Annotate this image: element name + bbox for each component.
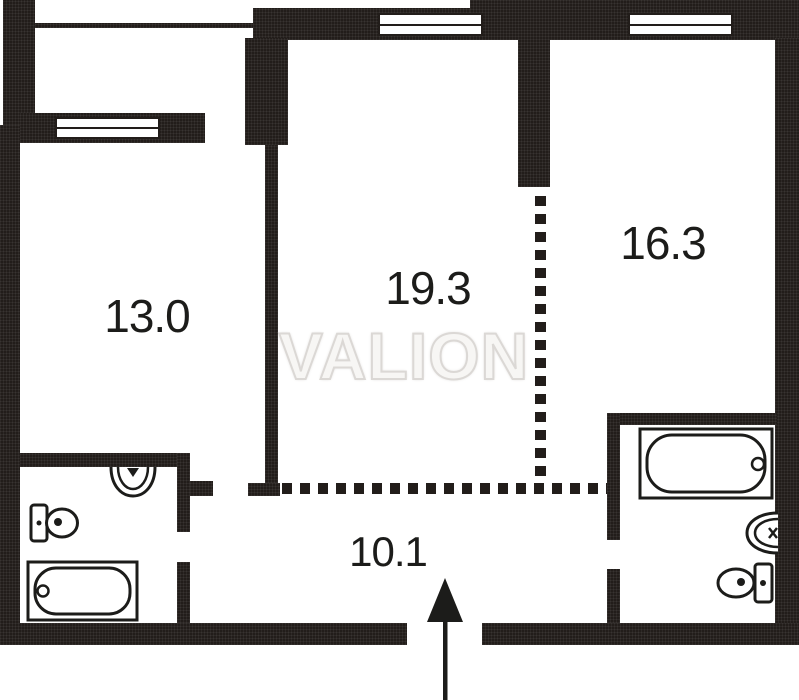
room-center-area-label: 19.3 (385, 261, 471, 315)
divider-13-19-foot (248, 483, 280, 496)
bathroom-right-side-wall-upper (607, 413, 620, 540)
exterior-bottom-wall-left (0, 623, 407, 645)
balcony-top-wall (35, 23, 255, 28)
bathtub-right-icon (638, 427, 774, 500)
window-room-center (378, 13, 483, 36)
window-room-left (55, 117, 160, 139)
hallway-area-label: 10.1 (349, 528, 427, 576)
room-left-area-label: 13.0 (104, 289, 190, 343)
floor-plan: 13.0 19.3 16.3 10.1 VALION (0, 0, 799, 700)
dashed-partition-vertical (535, 196, 546, 480)
sink-right-icon (744, 510, 778, 556)
bathtub-left-icon (26, 560, 139, 622)
valion-watermark: VALION (279, 318, 529, 394)
window-frame-line (57, 127, 158, 129)
toilet-left-icon (28, 502, 82, 544)
bathroom-left-side-wall-lower (177, 562, 190, 623)
bathroom-right-top-wall (607, 413, 777, 425)
exterior-bottom-wall-right (482, 623, 799, 645)
sink-left-icon (108, 467, 158, 500)
divider-13-19-upper (245, 38, 288, 145)
dashed-partition-horizontal (282, 483, 607, 494)
divider-13-19-lower (265, 145, 278, 483)
bathroom-right-side-wall-lower (607, 569, 620, 623)
window-frame-line (380, 24, 481, 26)
window-room-right (628, 13, 733, 36)
window-frame-line (630, 24, 731, 26)
exterior-right-wall (775, 38, 799, 645)
bathroom-left-top-wall (20, 453, 190, 467)
bathroom-left-side-wall-upper (177, 453, 190, 532)
entrance-arrow-icon (425, 578, 465, 700)
toilet-right-icon (713, 560, 775, 606)
hallway-wall-stub (190, 481, 213, 496)
exterior-left-wall (0, 125, 20, 645)
divider-19-16-stub (518, 40, 550, 187)
room-right-area-label: 16.3 (620, 216, 706, 270)
